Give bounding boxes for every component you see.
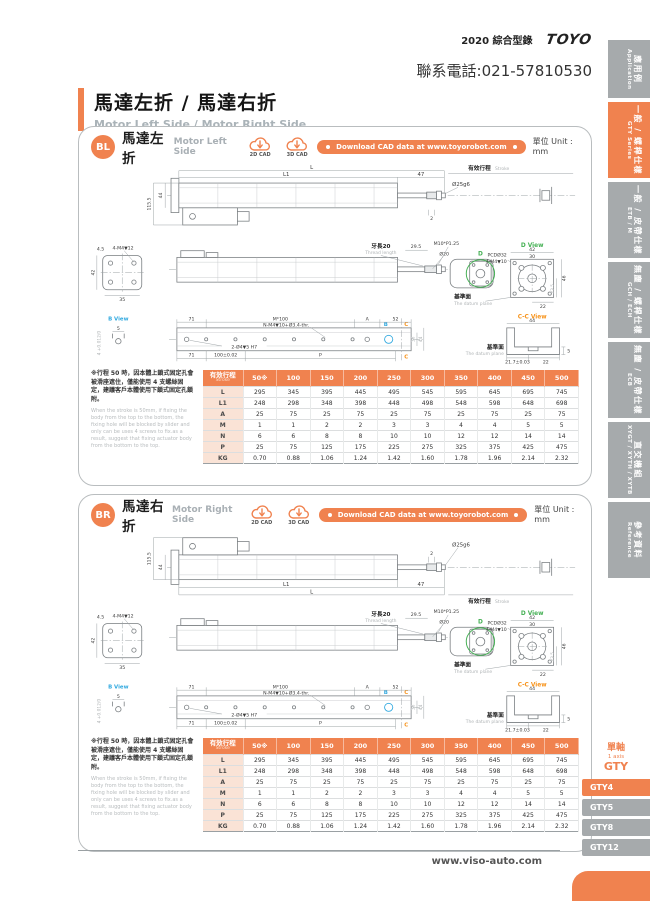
cell: 698 (545, 398, 579, 409)
cell: 4 (444, 788, 478, 799)
download-2d-cad-button[interactable]: 2D CAD (247, 136, 273, 158)
cell: 348 (310, 766, 344, 777)
stroke-column-header: 350 (444, 738, 478, 755)
cell: 425 (511, 442, 545, 453)
c-mark-top: C (404, 322, 408, 328)
cell: 1.60 (411, 821, 445, 832)
cell: 3 (411, 420, 445, 431)
cell: 548 (444, 766, 478, 777)
cell: 12 (478, 431, 512, 442)
tab-label-en: Reference (626, 502, 632, 578)
sidebar-tab-etb-m[interactable]: 一般 / 皮帶仕樣 ETB / M (608, 182, 650, 258)
dim-4-5: 4.5 (97, 247, 104, 253)
tab-label-zh: 無塵 / 皮帶仕樣 (632, 342, 643, 418)
note-zh: ※行程 50 時，因本體上鎖式固定孔會被滑座遮住，僅能使用 4 支螺絲固定，建議… (91, 370, 195, 405)
dim-pcd: PCDØ32 (488, 251, 507, 258)
cell: 248 (243, 398, 277, 409)
b-view-label: B View (108, 316, 129, 322)
cell: 225 (377, 442, 411, 453)
cell: 75 (277, 409, 311, 420)
cell: 6 (243, 431, 277, 442)
cell: 1.06 (310, 821, 344, 832)
stroke-label-en: Stroke (495, 166, 510, 172)
stroke-column-header: 300 (411, 738, 445, 755)
cell: 1.78 (444, 453, 478, 464)
cell: 398 (344, 398, 378, 409)
cell: 2 (344, 788, 378, 799)
table-row: L295345395445495545595645695745 (203, 755, 579, 766)
cell: 25 (243, 777, 277, 788)
section-motor-right: BR 馬達右折 Motor Right Side 2D CAD 3D CAD D… (78, 494, 592, 852)
cell: 75 (344, 777, 378, 788)
table-row: A25752575257525752575 (203, 409, 579, 420)
stroke-column-header: 200 (344, 370, 378, 387)
page-title-zh: 馬達左折 / 馬達右折 (94, 88, 306, 115)
cell: 0.88 (277, 453, 311, 464)
axis-label-en: 1 axis (582, 754, 650, 761)
row-label: P (203, 442, 243, 453)
row-label: P (203, 810, 243, 821)
cell: 648 (511, 398, 545, 409)
model-tab-gty5[interactable]: GTY5 (582, 799, 650, 816)
dim-115: 115.5 (146, 197, 152, 210)
detail-views: 4.5 4-M4▼12 42 35 牙長20 Thread length 29.… (91, 241, 570, 366)
section-header: BL 馬達左折 Motor Left Side 2D CAD 3D CAD Do… (91, 134, 579, 160)
unit-label: 單位 Unit : mm (533, 134, 579, 156)
model-selector: 單軸 1 axis GTY GTY4 GTY5 GTY8 GTY12 (582, 744, 650, 859)
cell: 5 (511, 420, 545, 431)
stroke-header-en: Stroke (203, 379, 243, 384)
dim-end-tap: 4-M4▼12 (112, 246, 133, 252)
cell: 2.32 (545, 821, 579, 832)
tab-label-en: ECB (626, 342, 632, 418)
page-header: 2020 綜合型錄 TOYO 聯系電話:021-57810530 (417, 32, 592, 81)
table-header-row: 有效行程 Stroke 50※1001502002503003504004505… (203, 370, 579, 387)
cell: 298 (277, 766, 311, 777)
dim-cc44: 44 (529, 318, 535, 324)
cell: 10 (411, 431, 445, 442)
stroke-column-header: 50※ (243, 738, 277, 755)
cell: 4 (478, 788, 512, 799)
dim-71-top: 71 (189, 316, 195, 322)
section-motor-left: BL 馬達左折 Motor Left Side 2D CAD 3D CAD Do… (78, 126, 592, 486)
dim-b-tol: 4 +0.012/0 (97, 331, 103, 356)
dim-36: 36 (410, 336, 416, 342)
cell: 75 (277, 777, 311, 788)
cell: 3 (377, 420, 411, 431)
cell: 548 (444, 398, 478, 409)
cell: 175 (344, 442, 378, 453)
side-view-motor-above: Ø25g6 2 L1 47 L 有效行程 Stroke 115.5 44 (146, 538, 575, 605)
cell: 8 (310, 431, 344, 442)
cell: 225 (377, 810, 411, 821)
tab-label-en: Application (626, 40, 632, 98)
stroke-label-zh: 有效行程 (468, 164, 491, 172)
cell: 1.06 (310, 453, 344, 464)
dim-2: 2 (430, 551, 433, 557)
cell: 1 (243, 420, 277, 431)
model-tab-gty4[interactable]: GTY4 (582, 779, 650, 796)
table-row: N6688101012121414 (203, 431, 579, 442)
download-2d-cad-button[interactable]: 2D CAD (249, 504, 275, 526)
download-cad-link[interactable]: Download CAD data at www.toyorobot.com (317, 140, 525, 154)
row-label: L1 (203, 398, 243, 409)
cell: 12 (478, 799, 512, 810)
tab-label-zh: 一般 / 螺桿仕樣 (632, 102, 643, 178)
download-cad-link[interactable]: Download CAD data at www.toyorobot.com (319, 508, 527, 522)
cell: 598 (478, 398, 512, 409)
dim-P: P (319, 353, 322, 359)
dim-L: L (310, 165, 313, 171)
cell: 8 (310, 799, 344, 810)
cell: 14 (545, 431, 579, 442)
stroke-header-cell: 有效行程 Stroke (203, 370, 243, 387)
section-title-en: Motor Right Side (172, 505, 238, 525)
cell: 445 (344, 755, 378, 766)
cell: 10 (377, 799, 411, 810)
model-tab-gty8[interactable]: GTY8 (582, 819, 650, 836)
datum-en: The datum plane (453, 301, 492, 307)
series-label: GTY (582, 760, 650, 773)
dim-42: 42 (91, 270, 96, 276)
row-label: N (203, 431, 243, 442)
download-3d-cad-button[interactable]: 3D CAD (284, 136, 310, 158)
cell: 25 (444, 409, 478, 420)
cell: 25 (511, 777, 545, 788)
stroke-column-header: 450 (511, 370, 545, 387)
cell: 695 (511, 387, 545, 398)
cell: 495 (377, 387, 411, 398)
sidebar-tab-reference[interactable]: 參考資料 Reference (608, 502, 650, 578)
table-row: M1122334455 (203, 420, 579, 431)
cad-3d-label: 3D CAD (286, 521, 312, 526)
dim-rod-dia: Ø25g6 (452, 181, 470, 188)
cell: 75 (545, 409, 579, 420)
stroke-column-header: 250 (377, 370, 411, 387)
cell: 0.70 (243, 453, 277, 464)
cell: 2 (310, 788, 344, 799)
cad-3d-label: 3D CAD (284, 153, 310, 158)
sidebar-tab-gty-series[interactable]: 一般 / 螺桿仕樣 GTY Series (608, 102, 650, 178)
cell: 295 (243, 755, 277, 766)
dim-dowel: 2-Ø4▼5 H7 (231, 343, 257, 350)
dot-icon (326, 145, 330, 149)
tab-label-en: ETB / M (626, 182, 632, 258)
cell: 4 (444, 420, 478, 431)
thread-length-zh: 牙長20 (371, 242, 390, 250)
cell: 75 (277, 810, 311, 821)
sidebar-tab-xygt[interactable]: 直交機組 XYGT / XYTH / XYTB (608, 422, 650, 498)
table-row: N6688101012121414 (203, 799, 579, 810)
cell: 25 (243, 442, 277, 453)
dim-71-bottom: 71 (189, 353, 195, 359)
stroke-column-header: 400 (478, 370, 512, 387)
cell: 475 (545, 442, 579, 453)
cell: 75 (478, 409, 512, 420)
tab-label-zh: 無塵 / 螺桿仕樣 (632, 262, 643, 338)
section-badge-br: BR (91, 503, 115, 527)
stroke-dimension-table: 有效行程 Stroke 50※1001502002503003504004505… (203, 370, 579, 464)
cell: 25 (444, 777, 478, 788)
cell: 325 (444, 810, 478, 821)
row-label: L (203, 755, 243, 766)
cell: 298 (277, 398, 311, 409)
dim-L: L (310, 590, 313, 596)
note-en: When the stroke is 50mm, if fixing the b… (91, 408, 195, 450)
table-row: L1248298348398448498548598648698 (203, 766, 579, 777)
cell: 5 (545, 788, 579, 799)
cell: 3 (377, 788, 411, 799)
dim-b5: 5 (117, 326, 120, 332)
datum-zh: 基準面 (453, 292, 471, 300)
cell: 448 (377, 398, 411, 409)
dim-115: 115.5 (146, 552, 152, 565)
stroke-dimension-table: 有效行程 Stroke 50※1001502002503003504004505… (203, 738, 579, 832)
stroke-column-header: 50※ (243, 370, 277, 387)
dim-44: 44 (158, 192, 164, 198)
stroke-header-en: Stroke (203, 747, 243, 752)
cell: 12 (444, 431, 478, 442)
cell: 248 (243, 766, 277, 777)
cell: 425 (511, 810, 545, 821)
cell: 1.42 (377, 821, 411, 832)
cell: 5 (511, 788, 545, 799)
cell: 75 (478, 777, 512, 788)
cell: 275 (411, 442, 445, 453)
unit-label: 單位 Unit : mm (534, 502, 579, 524)
datum-zh-cc: 基準面 (486, 343, 504, 351)
row-label: KG (203, 453, 243, 464)
tab-label-zh: 一般 / 皮帶仕樣 (632, 182, 643, 258)
dim-d30: 30 (529, 254, 535, 260)
stroke-column-header: 250 (377, 738, 411, 755)
catalog-edition: 2020 綜合型錄 (461, 36, 532, 47)
table-row: KG0.700.881.061.241.421.601.781.962.142.… (203, 821, 579, 832)
dim-pitch: M*100 (273, 316, 288, 322)
stroke-column-header: 350 (444, 370, 478, 387)
cell: 2.32 (545, 453, 579, 464)
cell: 595 (444, 387, 478, 398)
dim-29-5: 29.5 (411, 244, 421, 250)
section-badge-bl: BL (91, 135, 115, 159)
dim-L1: L1 (283, 582, 289, 588)
row-label: N (203, 799, 243, 810)
footer-divider (78, 850, 560, 851)
table-row: KG0.700.881.061.241.421.601.781.962.142.… (203, 453, 579, 464)
tab-label-en: GTY Series (626, 102, 632, 178)
axis-label-zh: 單軸 (582, 744, 650, 754)
cloud-download-icon (286, 504, 312, 520)
dim-A: A (366, 316, 370, 322)
dim-100: 100±0.02 (214, 353, 237, 359)
cell: 1 (277, 420, 311, 431)
b-mark: B (384, 322, 388, 328)
sidebar-tab-application[interactable]: 應用例 Application (608, 40, 650, 98)
sidebar-tab-ecb[interactable]: 無塵 / 皮帶仕樣 ECB (608, 342, 650, 418)
dim-rod-dia: Ø25g6 (452, 541, 470, 548)
contact-phone: 聯系電話:021-57810530 (417, 60, 592, 81)
cell: 345 (277, 387, 311, 398)
cell: 1.24 (344, 821, 378, 832)
table-row: P2575125175225275325375425475 (203, 442, 579, 453)
cell: 25 (243, 810, 277, 821)
stroke-label-en: Stroke (495, 599, 510, 605)
dim-44: 44 (158, 564, 164, 570)
cell: 3 (411, 788, 445, 799)
dim-d42: 42 (529, 247, 535, 253)
stroke-column-header: 300 (411, 370, 445, 387)
datum-en-cc: The datum plane (465, 351, 504, 357)
tab-label-zh: 應用例 (632, 40, 643, 98)
table-row: L295345395445495545595645695745 (203, 387, 579, 398)
row-label: KG (203, 821, 243, 832)
dim-tap-holes: N-M4▼10+Ø3.4-thr. (263, 322, 309, 329)
cell: 14 (511, 799, 545, 810)
table-row: M1122334455 (203, 788, 579, 799)
cell: 25 (310, 777, 344, 788)
cell: 1.42 (377, 453, 411, 464)
cell: 0.88 (277, 821, 311, 832)
cloud-download-icon (249, 504, 275, 520)
download-cad-text: Download CAD data at www.toyorobot.com (336, 143, 506, 151)
tab-label-en: GCH / ECH (626, 262, 632, 338)
cell: 498 (411, 398, 445, 409)
cell: 5 (545, 420, 579, 431)
stroke-50-note: ※行程 50 時，因本體上鎖式固定孔會被滑座遮住，僅能使用 4 支螺絲固定，建議… (91, 370, 195, 464)
cell: 695 (511, 755, 545, 766)
model-tab-gty12[interactable]: GTY12 (582, 839, 650, 856)
cell: 395 (310, 755, 344, 766)
cell: 6 (277, 431, 311, 442)
cell: 375 (478, 810, 512, 821)
cell: 445 (344, 387, 378, 398)
thread-length-en: Thread length (364, 250, 397, 256)
cell: 14 (511, 431, 545, 442)
table-header-row: 有效行程 Stroke 50※1001502002503003504004505… (203, 738, 579, 755)
stroke-column-header: 200 (344, 738, 378, 755)
note-en: When the stroke is 50mm, if fixing the b… (91, 776, 195, 818)
dim-cc5: 5 (567, 349, 570, 355)
row-label: A (203, 409, 243, 420)
technical-drawing-br: Ø25g6 2 L1 47 L 有效行程 Stroke 115.5 44 (91, 532, 579, 734)
dim-d23-5: 23.5 (550, 284, 556, 294)
cell: 745 (545, 755, 579, 766)
stroke-column-header: 100 (277, 370, 311, 387)
stroke-column-header: 150 (310, 370, 344, 387)
table-row: P2575125175225275325375425475 (203, 810, 579, 821)
row-label: A (203, 777, 243, 788)
stroke-label-zh: 有效行程 (468, 597, 491, 605)
cell: 348 (310, 398, 344, 409)
cell: 6 (277, 799, 311, 810)
cell: 598 (478, 766, 512, 777)
cad-2d-label: 2D CAD (247, 153, 273, 158)
cell: 75 (277, 442, 311, 453)
table-row: L1248298348398448498548598648698 (203, 398, 579, 409)
cell: 6 (243, 799, 277, 810)
sidebar-tab-gch-ech[interactable]: 無塵 / 螺桿仕樣 GCH / ECH (608, 262, 650, 338)
cell: 448 (377, 766, 411, 777)
cell: 345 (277, 755, 311, 766)
section-title-en: Motor Left Side (174, 137, 237, 157)
stroke-column-header: 100 (277, 738, 311, 755)
dim-cc21-7: 21.7±0.03 (505, 360, 530, 366)
side-view-motor-below: L L1 47 有效行程 Stroke Ø25g6 2 115.5 44 (146, 164, 575, 225)
cell: 10 (377, 431, 411, 442)
cell: 2.14 (511, 453, 545, 464)
cell: 545 (411, 755, 445, 766)
cell: 75 (344, 409, 378, 420)
dim-t44: 44 (418, 336, 424, 342)
tab-label-zh: 參考資料 (632, 502, 643, 578)
cell: 1.96 (478, 453, 512, 464)
row-label: M (203, 788, 243, 799)
download-3d-cad-button[interactable]: 3D CAD (286, 504, 312, 526)
cell: 8 (344, 431, 378, 442)
toyo-logo: TOYO (545, 32, 594, 48)
cell: 745 (545, 387, 579, 398)
cell: 25 (511, 409, 545, 420)
cell: 295 (243, 387, 277, 398)
row-label: L1 (203, 766, 243, 777)
stroke-50-note: ※行程 50 時，因本體上鎖式固定孔會被滑座遮住，僅能使用 4 支螺絲固定，建議… (91, 738, 195, 832)
note-zh: ※行程 50 時，因本體上鎖式固定孔會被滑座遮住，僅能使用 4 支螺絲固定，建議… (91, 738, 195, 773)
dot-icon (513, 145, 517, 149)
cell: 1.24 (344, 453, 378, 464)
stroke-column-header: 500 (545, 738, 579, 755)
cell: 645 (478, 755, 512, 766)
cell: 495 (377, 755, 411, 766)
cell: 25 (310, 409, 344, 420)
download-cad-text: Download CAD data at www.toyorobot.com (338, 511, 508, 519)
dim-47: 47 (417, 172, 424, 178)
cell: 75 (545, 777, 579, 788)
cell: 648 (511, 766, 545, 777)
stroke-column-header: 450 (511, 738, 545, 755)
stroke-header-cell: 有效行程 Stroke (203, 738, 243, 755)
cell: 125 (310, 442, 344, 453)
cell: 0.70 (243, 821, 277, 832)
dot-icon (328, 513, 332, 517)
section-header: BR 馬達右折 Motor Right Side 2D CAD 3D CAD D… (91, 502, 579, 528)
dim-2: 2 (430, 216, 433, 222)
cell: 395 (310, 387, 344, 398)
cell: 398 (344, 766, 378, 777)
dim-pcd-tap: 4-M4▼10 (486, 259, 507, 265)
cell: 12 (444, 799, 478, 810)
cloud-download-icon (284, 136, 310, 152)
cell: 25 (243, 409, 277, 420)
cell: 1 (243, 788, 277, 799)
cell: 1 (277, 788, 311, 799)
detail-views-shared (91, 609, 570, 734)
c-mark-bottom: C (404, 354, 408, 360)
tab-label-en: XYGT / XYTH / XYTB (626, 422, 632, 498)
section-title-zh: 馬達左折 (122, 127, 167, 167)
cloud-download-icon (247, 136, 273, 152)
cell: 75 (411, 409, 445, 420)
tab-label-zh: 直交機組 (632, 422, 643, 498)
cell: 2.14 (511, 821, 545, 832)
dim-L1: L1 (283, 172, 289, 178)
cell: 1.96 (478, 821, 512, 832)
cell: 698 (545, 766, 579, 777)
cad-2d-label: 2D CAD (249, 521, 275, 526)
cell: 25 (377, 777, 411, 788)
page-title: 馬達左折 / 馬達右折 Motor Left Side / Motor Righ… (78, 88, 306, 131)
dim-d46: 46 (561, 275, 567, 281)
dim-47: 47 (417, 582, 424, 588)
